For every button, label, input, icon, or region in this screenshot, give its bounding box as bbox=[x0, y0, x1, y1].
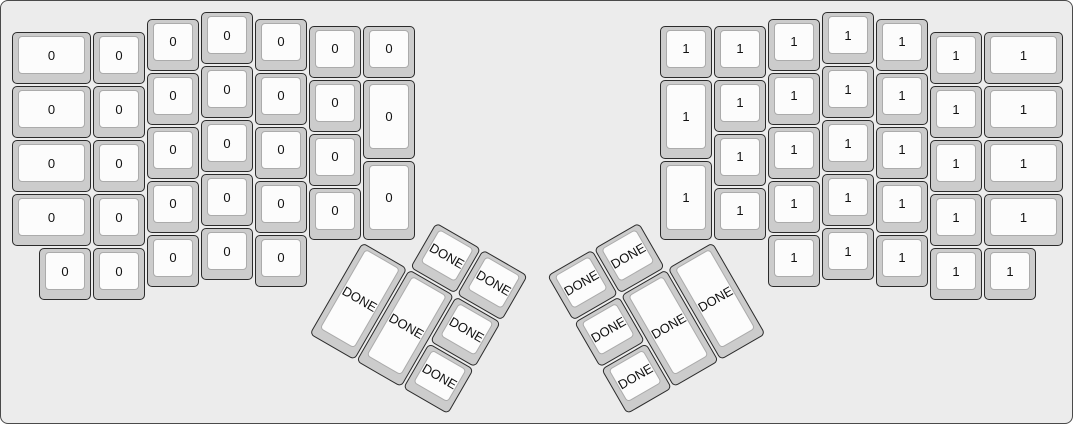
keycap-label: 0 bbox=[331, 150, 338, 163]
right-main-key-17[interactable]: 1 bbox=[822, 228, 874, 280]
keycap-top: 1 bbox=[882, 131, 922, 169]
left-main-key-29[interactable]: 0 bbox=[363, 80, 415, 159]
keycap-top: 0 bbox=[99, 198, 139, 236]
keycap-label: 0 bbox=[277, 197, 284, 210]
keycap-label: 1 bbox=[844, 137, 851, 150]
keycap-label: 1 bbox=[844, 83, 851, 96]
keycap-top: 1 bbox=[882, 77, 922, 115]
keycap-top: 1 bbox=[936, 198, 976, 236]
keycap-top: 0 bbox=[153, 77, 193, 115]
right-main-key-27[interactable]: 1 bbox=[930, 248, 982, 300]
left-main-key-3[interactable]: 0 bbox=[12, 140, 91, 192]
keycap-top: 1 bbox=[666, 30, 706, 68]
keycap-label: 0 bbox=[169, 251, 176, 264]
keycap-top: 1 bbox=[720, 84, 760, 122]
right-main-key-19[interactable]: 1 bbox=[876, 73, 928, 125]
keycap-top: 1 bbox=[882, 239, 922, 277]
keycap-top: 0 bbox=[153, 131, 193, 169]
keycap-label: 0 bbox=[169, 197, 176, 210]
right-main-key-20[interactable]: 1 bbox=[876, 127, 928, 179]
keycap-top: 1 bbox=[828, 124, 868, 162]
left-main-key-11[interactable]: 0 bbox=[147, 127, 199, 179]
keycap-top: 1 bbox=[666, 165, 706, 230]
keycap-label: 1 bbox=[682, 42, 689, 55]
keycap-top: 1 bbox=[774, 131, 814, 169]
keycap-top: 0 bbox=[261, 239, 301, 277]
right-main-key-13[interactable]: 1 bbox=[822, 12, 874, 64]
keycap-top: 0 bbox=[99, 252, 139, 290]
left-main-key-17[interactable]: 0 bbox=[201, 174, 253, 226]
keycap-label: 0 bbox=[331, 204, 338, 217]
keycap-label: 1 bbox=[844, 245, 851, 258]
keycap-label: 0 bbox=[61, 265, 68, 278]
left-main-key-5[interactable]: 0 bbox=[93, 32, 145, 84]
keycap-label: 0 bbox=[331, 42, 338, 55]
keyboard-canvas: 0000000000000000000000000000000011111111… bbox=[0, 0, 1073, 424]
left-main-key-13[interactable]: 0 bbox=[147, 235, 199, 287]
keycap-top: 0 bbox=[153, 239, 193, 277]
left-main-key-15[interactable]: 0 bbox=[201, 66, 253, 118]
keycap-label: 1 bbox=[898, 197, 905, 210]
keycap-label: 0 bbox=[169, 89, 176, 102]
left-main-key-27[interactable]: 0 bbox=[309, 188, 361, 240]
keycap-label: 1 bbox=[898, 251, 905, 264]
left-main-key-14[interactable]: 0 bbox=[201, 12, 253, 64]
keycap-label: 0 bbox=[277, 143, 284, 156]
keycap-label: 1 bbox=[682, 191, 689, 204]
keycap-label: 0 bbox=[385, 191, 392, 204]
keycap-top: 0 bbox=[315, 84, 355, 122]
keycap-label: 0 bbox=[115, 49, 122, 62]
keycap-label: DONE bbox=[447, 314, 486, 344]
right-main-key-5[interactable]: 1 bbox=[714, 80, 766, 132]
keycap-label: 1 bbox=[736, 42, 743, 55]
keycap-top: DONE bbox=[601, 229, 655, 282]
keycap-top: 1 bbox=[774, 239, 814, 277]
right-main-key-25[interactable]: 1 bbox=[930, 140, 982, 192]
keycap-top: 0 bbox=[99, 36, 139, 74]
keycap-label: 0 bbox=[48, 49, 55, 62]
keycap-label: 1 bbox=[952, 157, 959, 170]
keycap-top: 0 bbox=[153, 185, 193, 223]
left-main-key-2[interactable]: 0 bbox=[12, 86, 91, 138]
keycap-label: 1 bbox=[736, 150, 743, 163]
keycap-top: 0 bbox=[99, 144, 139, 182]
keycap-top: 1 bbox=[936, 36, 976, 74]
keycap-top: 1 bbox=[828, 70, 868, 108]
keycap-top: 0 bbox=[261, 77, 301, 115]
keycap-label: DONE bbox=[428, 240, 467, 270]
keycap-label: 1 bbox=[1006, 265, 1013, 278]
keycap-label: 0 bbox=[331, 96, 338, 109]
right-main-key-14[interactable]: 1 bbox=[822, 66, 874, 118]
keycap-top: 0 bbox=[207, 16, 247, 54]
keycap-label: 1 bbox=[844, 29, 851, 42]
keycap-top: 1 bbox=[936, 144, 976, 182]
keycap-top: 0 bbox=[153, 23, 193, 61]
keycap-top: DONE bbox=[467, 256, 521, 309]
keycap-label: 0 bbox=[48, 211, 55, 224]
keycap-top: 1 bbox=[828, 16, 868, 54]
keycap-top: 0 bbox=[315, 30, 355, 68]
left-main-key-24[interactable]: 0 bbox=[309, 26, 361, 78]
keycap-label: 0 bbox=[223, 191, 230, 204]
keycap-top: 1 bbox=[882, 23, 922, 61]
keycap-label: 1 bbox=[790, 197, 797, 210]
keycap-label: 1 bbox=[898, 35, 905, 48]
keycap-top: 0 bbox=[99, 90, 139, 128]
right-main-key-3[interactable]: 1 bbox=[660, 161, 712, 240]
keycap-label: 0 bbox=[115, 157, 122, 170]
keycap-label: 0 bbox=[48, 157, 55, 170]
keycap-label: 0 bbox=[223, 245, 230, 258]
right-main-key-32[interactable]: 1 bbox=[984, 248, 1036, 300]
keycap-label: 1 bbox=[952, 211, 959, 224]
keycap-top: 1 bbox=[990, 144, 1057, 182]
right-main-key-11[interactable]: 1 bbox=[768, 181, 820, 233]
keycap-label: 0 bbox=[277, 89, 284, 102]
keycap-label: DONE bbox=[608, 240, 647, 270]
keycap-top: 0 bbox=[315, 192, 355, 230]
left-main-key-22[interactable]: 0 bbox=[255, 181, 307, 233]
right-main-key-31[interactable]: 1 bbox=[984, 194, 1063, 246]
keycap-label: DONE bbox=[562, 267, 601, 297]
keycap-top: 0 bbox=[18, 36, 85, 74]
keycap-top: 0 bbox=[261, 131, 301, 169]
keyboard: 0000000000000000000000000000000011111111… bbox=[1, 1, 1072, 423]
keycap-top: 0 bbox=[369, 30, 409, 68]
keycap-top: 1 bbox=[990, 90, 1057, 128]
keycap-label: 1 bbox=[682, 110, 689, 123]
right-main-key-29[interactable]: 1 bbox=[984, 86, 1063, 138]
keycap-top: 1 bbox=[990, 198, 1057, 236]
keycap-top: 0 bbox=[18, 144, 85, 182]
keycap-top: 0 bbox=[18, 90, 85, 128]
left-main-key-4[interactable]: 0 bbox=[12, 194, 91, 246]
right-main-key-10[interactable]: 1 bbox=[768, 127, 820, 179]
keycap-label: 1 bbox=[736, 96, 743, 109]
keycap-label: DONE bbox=[589, 314, 628, 344]
right-main-key-1[interactable]: 1 bbox=[660, 26, 712, 78]
keycap-label: 0 bbox=[385, 110, 392, 123]
keycap-top: 1 bbox=[936, 90, 976, 128]
keycap-label: DONE bbox=[420, 361, 459, 391]
left-main-key-19[interactable]: 0 bbox=[255, 19, 307, 71]
keycap-label: 0 bbox=[277, 35, 284, 48]
left-main-key-30[interactable]: 0 bbox=[363, 161, 415, 240]
keycap-top: 0 bbox=[369, 165, 409, 230]
right-main-key-26[interactable]: 1 bbox=[930, 194, 982, 246]
keycap-label: 0 bbox=[223, 83, 230, 96]
left-main-key-6[interactable]: 0 bbox=[93, 86, 145, 138]
keycap-top: DONE bbox=[554, 256, 608, 309]
keycap-label: 1 bbox=[952, 49, 959, 62]
right-main-key-30[interactable]: 1 bbox=[984, 140, 1063, 192]
keycap-label: 1 bbox=[1020, 49, 1027, 62]
keycap-label: 1 bbox=[736, 204, 743, 217]
keycap-label: 1 bbox=[790, 143, 797, 156]
keycap-top: 1 bbox=[828, 178, 868, 216]
right-main-key-6[interactable]: 1 bbox=[714, 134, 766, 186]
right-main-key-18[interactable]: 1 bbox=[876, 19, 928, 71]
keycap-top: 0 bbox=[369, 84, 409, 149]
keycap-label: 1 bbox=[898, 143, 905, 156]
keycap-label: 0 bbox=[115, 265, 122, 278]
keycap-top: 1 bbox=[936, 252, 976, 290]
keycap-top: 1 bbox=[828, 232, 868, 270]
right-main-key-12[interactable]: 1 bbox=[768, 235, 820, 287]
keycap-label: DONE bbox=[474, 267, 513, 297]
left-main-key-26[interactable]: 0 bbox=[309, 134, 361, 186]
keycap-top: 1 bbox=[774, 185, 814, 223]
keycap-label: DONE bbox=[616, 361, 655, 391]
keycap-label: 0 bbox=[223, 29, 230, 42]
left-main-key-31[interactable]: 0 bbox=[39, 248, 91, 300]
keycap-label: DONE bbox=[649, 310, 688, 340]
keycap-top: 0 bbox=[261, 23, 301, 61]
right-main-key-8[interactable]: 1 bbox=[768, 19, 820, 71]
left-main-key-9[interactable]: 0 bbox=[147, 19, 199, 71]
keycap-top: 0 bbox=[207, 232, 247, 270]
keycap-label: 0 bbox=[115, 211, 122, 224]
keycap-top: 1 bbox=[774, 77, 814, 115]
left-main-key-20[interactable]: 0 bbox=[255, 73, 307, 125]
right-main-key-4[interactable]: 1 bbox=[714, 26, 766, 78]
keycap-top: 1 bbox=[990, 36, 1057, 74]
right-main-key-28[interactable]: 1 bbox=[984, 32, 1063, 84]
right-main-key-9[interactable]: 1 bbox=[768, 73, 820, 125]
keycap-label: 1 bbox=[952, 265, 959, 278]
keycap-label: DONE bbox=[387, 310, 426, 340]
left-main-key-28[interactable]: 0 bbox=[363, 26, 415, 78]
keycap-label: 1 bbox=[790, 35, 797, 48]
right-main-key-7[interactable]: 1 bbox=[714, 188, 766, 240]
keycap-top: 1 bbox=[882, 185, 922, 223]
keycap-top: DONE bbox=[420, 229, 474, 282]
keycap-label: 1 bbox=[1020, 157, 1027, 170]
keycap-top: 1 bbox=[720, 138, 760, 176]
keycap-label: 0 bbox=[115, 103, 122, 116]
keycap-top: 0 bbox=[18, 198, 85, 236]
keycap-top: 0 bbox=[207, 124, 247, 162]
right-main-key-24[interactable]: 1 bbox=[930, 86, 982, 138]
left-main-key-1[interactable]: 0 bbox=[12, 32, 91, 84]
keycap-label: 1 bbox=[844, 191, 851, 204]
keycap-label: 1 bbox=[1020, 211, 1027, 224]
keycap-top: 0 bbox=[315, 138, 355, 176]
keycap-top: 1 bbox=[990, 252, 1030, 290]
right-main-key-22[interactable]: 1 bbox=[876, 235, 928, 287]
keycap-label: 0 bbox=[169, 35, 176, 48]
keycap-label: 0 bbox=[385, 42, 392, 55]
keycap-top: 0 bbox=[45, 252, 85, 290]
keycap-top: 1 bbox=[774, 23, 814, 61]
left-main-key-32[interactable]: 0 bbox=[93, 248, 145, 300]
left-main-key-7[interactable]: 0 bbox=[93, 140, 145, 192]
left-main-key-8[interactable]: 0 bbox=[93, 194, 145, 246]
left-main-key-12[interactable]: 0 bbox=[147, 181, 199, 233]
right-main-key-16[interactable]: 1 bbox=[822, 174, 874, 226]
keycap-label: 0 bbox=[169, 143, 176, 156]
keycap-top: 1 bbox=[720, 30, 760, 68]
left-main-key-23[interactable]: 0 bbox=[255, 235, 307, 287]
left-main-key-16[interactable]: 0 bbox=[201, 120, 253, 172]
keycap-label: 0 bbox=[223, 137, 230, 150]
keycap-label: 1 bbox=[952, 103, 959, 116]
keycap-label: DONE bbox=[696, 283, 735, 313]
keycap-top: 1 bbox=[666, 84, 706, 149]
left-main-key-21[interactable]: 0 bbox=[255, 127, 307, 179]
right-main-key-15[interactable]: 1 bbox=[822, 120, 874, 172]
keycap-label: DONE bbox=[340, 283, 379, 313]
keycap-top: 0 bbox=[207, 70, 247, 108]
keycap-top: 0 bbox=[261, 185, 301, 223]
left-main-key-25[interactable]: 0 bbox=[309, 80, 361, 132]
keycap-label: 0 bbox=[48, 103, 55, 116]
right-main-key-23[interactable]: 1 bbox=[930, 32, 982, 84]
keycap-label: 0 bbox=[277, 251, 284, 264]
right-main-key-2[interactable]: 1 bbox=[660, 80, 712, 159]
right-main-key-21[interactable]: 1 bbox=[876, 181, 928, 233]
left-main-key-18[interactable]: 0 bbox=[201, 228, 253, 280]
left-main-key-10[interactable]: 0 bbox=[147, 73, 199, 125]
keycap-top: 1 bbox=[720, 192, 760, 230]
keycap-top: 0 bbox=[207, 178, 247, 216]
keycap-label: 1 bbox=[1020, 103, 1027, 116]
keycap-label: 1 bbox=[790, 251, 797, 264]
keycap-label: 1 bbox=[898, 89, 905, 102]
keycap-label: 1 bbox=[790, 89, 797, 102]
